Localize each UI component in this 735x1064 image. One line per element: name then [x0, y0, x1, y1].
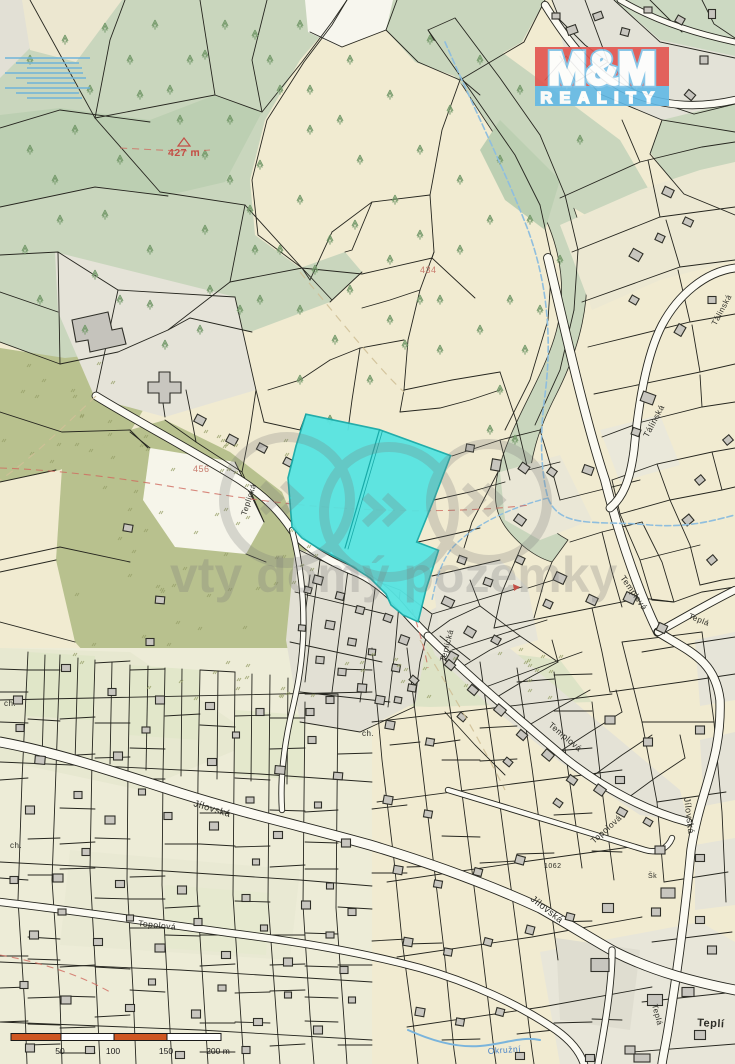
svg-text:Šk: Šk: [648, 871, 657, 880]
svg-text:ch.: ch.: [4, 699, 16, 708]
svg-text:ch.: ch.: [362, 729, 374, 738]
svg-text:vty domý pozemky: vty domý pozemky: [170, 547, 618, 603]
svg-text:434: 434: [420, 265, 437, 275]
svg-text:1062: 1062: [544, 863, 562, 870]
svg-text:50: 50: [55, 1046, 65, 1056]
svg-text:456: 456: [193, 464, 210, 474]
svg-text:427 m: 427 m: [168, 147, 200, 159]
svg-text:M&M: M&M: [548, 43, 655, 94]
svg-text:150: 150: [159, 1046, 173, 1056]
svg-text:100: 100: [106, 1046, 120, 1056]
svg-text:Teplí: Teplí: [697, 1017, 725, 1030]
svg-text:REALITY: REALITY: [541, 90, 662, 107]
svg-text:ch.: ch.: [10, 841, 22, 850]
svg-text:200 m: 200 m: [206, 1046, 230, 1056]
